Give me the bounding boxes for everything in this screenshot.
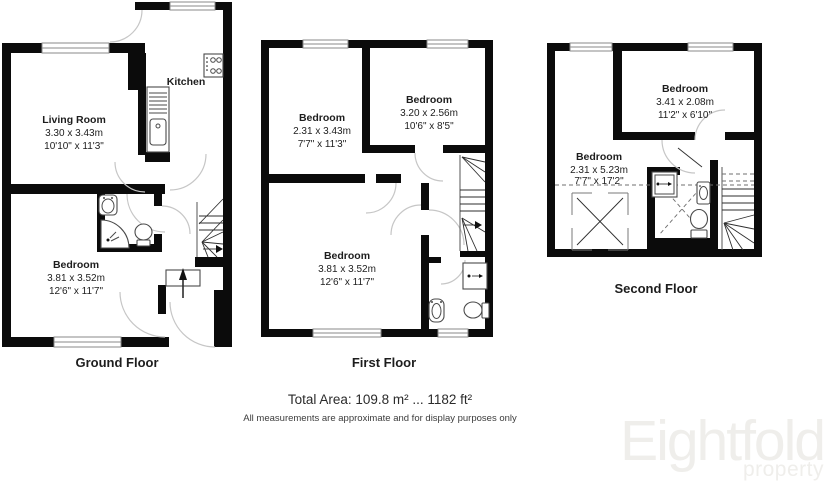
- first-walls: [261, 40, 493, 337]
- window: [570, 43, 612, 51]
- window: [688, 43, 733, 51]
- entry-door: [166, 268, 200, 298]
- room-label-bedroom-1: Bedroom 2.31 x 3.43m 7'7" x 11'3": [293, 112, 351, 150]
- room-imperial: 12'6" x 11'7": [49, 286, 104, 297]
- room-label-bedroom: Bedroom 3.81 x 3.52m 12'6" x 11'7": [47, 259, 105, 297]
- floorplan-page: Living Room 3.30 x 3.43m 10'10" x 11'3" …: [0, 0, 828, 497]
- stove-icon: [204, 54, 223, 77]
- window: [438, 329, 468, 337]
- room-label-living-room: Living Room 3.30 x 3.43m 10'10" x 11'3": [42, 114, 106, 152]
- skylight-icon: [572, 193, 628, 250]
- stairs-icon: [460, 155, 485, 251]
- second-floor-plan: Bedroom 3.41 x 2.08m 11'2" x 6'10" Bedro…: [547, 43, 762, 257]
- second-walls: [547, 43, 762, 257]
- first-floor-plan: Bedroom 2.31 x 3.43m 7'7" x 11'3" Bedroo…: [261, 40, 493, 337]
- room-imperial: 12'6" x 11'7": [320, 277, 375, 288]
- second-floor-label: Second Floor: [614, 281, 697, 296]
- door-arcs: [366, 153, 465, 284]
- room-label-bedroom-2: Bedroom 3.20 x 2.56m 10'6" x 8'5": [400, 94, 458, 132]
- window: [313, 329, 381, 337]
- room-metric: 3.41 x 2.08m: [656, 97, 714, 108]
- room-label-bedroom-3: Bedroom 3.81 x 3.52m 12'6" x 11'7": [318, 250, 376, 288]
- window: [303, 40, 348, 48]
- stairs-icon: [722, 167, 754, 250]
- stairs-icon: [197, 199, 223, 257]
- room-name: Bedroom: [324, 250, 370, 262]
- room-name: Bedroom: [662, 83, 708, 95]
- room-imperial: 7'7" x 11'3": [298, 139, 347, 150]
- room-label-kitchen: Kitchen: [167, 76, 206, 88]
- window: [427, 40, 468, 48]
- disclaimer-text: All measurements are approximate and for…: [243, 413, 517, 424]
- shower-icon: [463, 263, 487, 289]
- room-imperial: 10'6" x 8'5": [404, 121, 454, 132]
- first-floor-label: First Floor: [352, 355, 416, 370]
- bathroom-sink-icon: [429, 299, 444, 322]
- ground-floor-plan: Living Room 3.30 x 3.43m 10'10" x 11'3" …: [2, 2, 232, 347]
- window: [54, 337, 121, 347]
- room-metric: 2.31 x 5.23m: [570, 165, 628, 176]
- room-metric: 3.20 x 2.56m: [400, 108, 458, 119]
- room-name: Bedroom: [406, 94, 452, 106]
- room-metric: 3.30 x 3.43m: [45, 128, 103, 139]
- room-imperial: 11'2" x 6'10": [658, 110, 713, 121]
- window: [170, 2, 215, 10]
- room-imperial: 7'7" x 17'2": [574, 176, 624, 187]
- toilet-icon: [691, 210, 708, 239]
- toilet-icon: [464, 302, 489, 318]
- ground-floor-label: Ground Floor: [75, 355, 158, 370]
- room-name: Living Room: [42, 114, 106, 126]
- room-metric: 3.81 x 3.52m: [47, 273, 105, 284]
- bathroom-sink-icon: [99, 195, 117, 215]
- toilet-icon: [135, 224, 152, 246]
- window: [42, 43, 109, 53]
- shower-icon: [652, 172, 677, 197]
- room-imperial: 10'10" x 11'3": [44, 141, 104, 152]
- total-area-text: Total Area: 109.8 m² ... 1182 ft²: [288, 392, 472, 407]
- shower-icon: [101, 220, 129, 248]
- room-name: Bedroom: [576, 151, 622, 163]
- room-label-bedroom-2: Bedroom 2.31 x 5.23m 7'7" x 17'2": [570, 151, 628, 187]
- eightfold-logo: Eightfold property: [620, 414, 824, 480]
- room-name: Bedroom: [53, 259, 99, 271]
- room-name: Kitchen: [167, 76, 206, 88]
- kitchen-sink-icon: [147, 87, 169, 152]
- room-name: Bedroom: [299, 112, 345, 124]
- room-metric: 2.31 x 3.43m: [293, 126, 351, 137]
- bathroom-sink-icon: [697, 182, 710, 204]
- room-label-bedroom-1: Bedroom 3.41 x 2.08m 11'2" x 6'10": [656, 83, 714, 121]
- room-metric: 3.81 x 3.52m: [318, 264, 376, 275]
